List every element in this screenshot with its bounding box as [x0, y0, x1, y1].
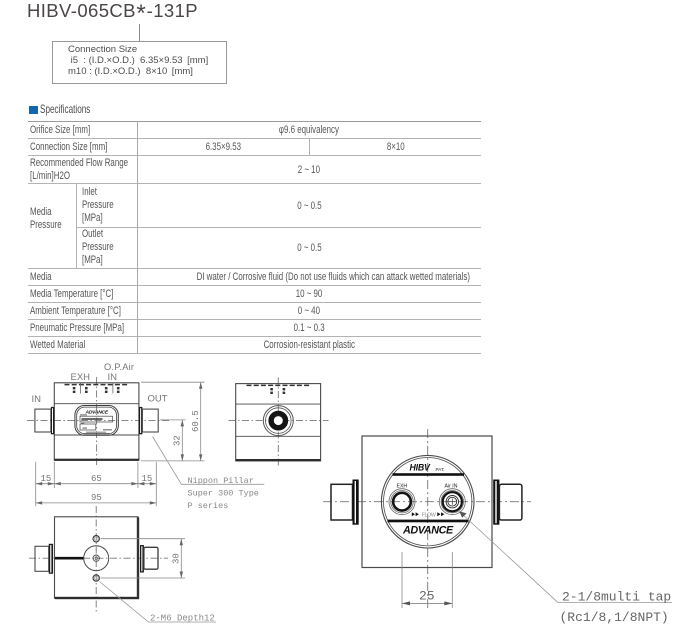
- svg-text:25: 25: [419, 589, 435, 604]
- svg-text:ADVANCE: ADVANCE: [85, 409, 109, 415]
- svg-text:EXH: EXH: [71, 372, 91, 383]
- svg-text:2-1/8multi tap: 2-1/8multi tap: [562, 589, 671, 604]
- svg-text:PAT.: PAT.: [436, 467, 445, 472]
- svg-text:95: 95: [91, 493, 102, 503]
- svg-text:IN: IN: [108, 372, 118, 383]
- svg-text:15: 15: [142, 474, 153, 484]
- svg-text:OUT: OUT: [148, 394, 168, 405]
- svg-text:30: 30: [172, 553, 182, 564]
- svg-text:32: 32: [173, 435, 183, 446]
- svg-text:HIBV: HIBV: [410, 463, 432, 473]
- svg-text:FLOW: FLOW: [422, 513, 436, 519]
- svg-text:60.5: 60.5: [191, 410, 201, 432]
- svg-text:P series: P series: [188, 501, 229, 511]
- svg-text:Nippon Pillar: Nippon Pillar: [188, 476, 254, 486]
- svg-text:2-M6 Depth12: 2-M6 Depth12: [150, 614, 215, 624]
- svg-text:Super 300 Type: Super 300 Type: [188, 489, 259, 499]
- svg-text:ADVANCE: ADVANCE: [402, 525, 454, 537]
- svg-text:15: 15: [41, 474, 52, 484]
- svg-text:IN: IN: [32, 394, 42, 405]
- svg-text:(Rc1/8,1/8NPT): (Rc1/8,1/8NPT): [560, 610, 669, 625]
- svg-text:O.P.Air: O.P.Air: [104, 362, 134, 372]
- svg-text:65: 65: [91, 474, 102, 484]
